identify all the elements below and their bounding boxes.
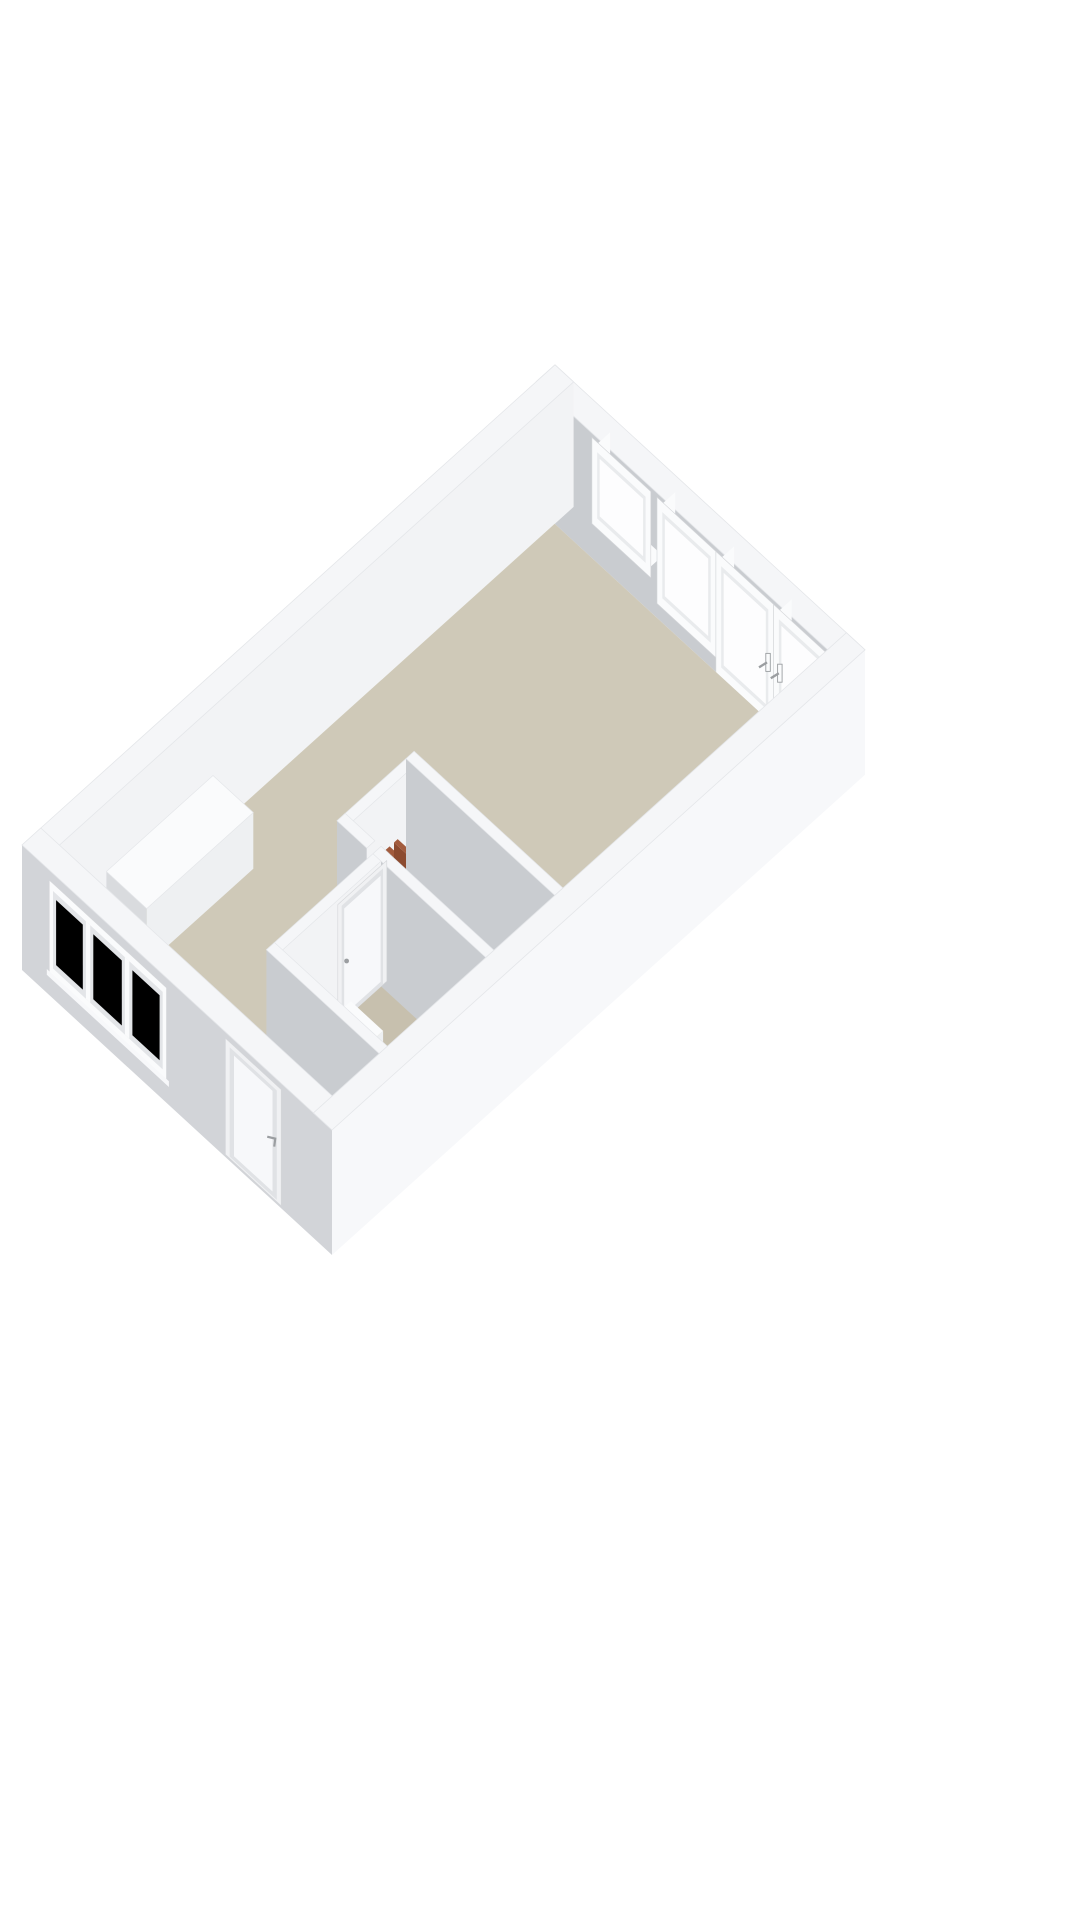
- floorplan-3d-render: [0, 0, 1080, 1920]
- floorplan-canvas: [0, 0, 1080, 1920]
